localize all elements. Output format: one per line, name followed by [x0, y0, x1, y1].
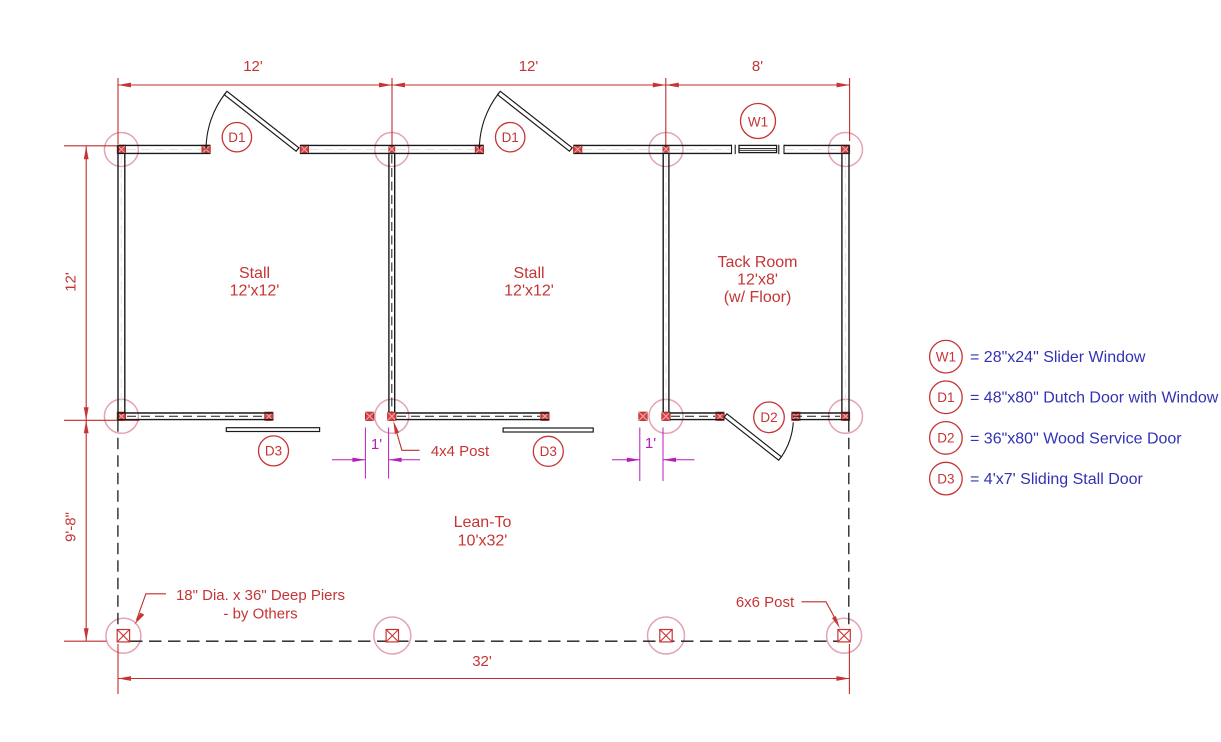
svg-text:D3: D3: [540, 444, 557, 459]
svg-text:D1: D1: [937, 390, 954, 405]
svg-text:(w/ Floor): (w/ Floor): [724, 289, 792, 306]
svg-text:D1: D1: [502, 130, 519, 145]
svg-text:8': 8': [752, 58, 763, 75]
svg-text:12': 12': [243, 58, 263, 75]
svg-text:12': 12': [519, 58, 539, 75]
svg-text:12'x8': 12'x8': [737, 272, 778, 289]
svg-text:D2: D2: [937, 431, 954, 446]
svg-text:D3: D3: [937, 471, 954, 486]
svg-text:Stall: Stall: [513, 265, 544, 282]
svg-text:Lean-To: Lean-To: [454, 514, 512, 531]
svg-text:18" Dia. x 36" Deep Piers: 18" Dia. x 36" Deep Piers: [176, 587, 345, 604]
svg-text:D1: D1: [228, 130, 245, 145]
svg-text:W1: W1: [936, 350, 956, 365]
svg-text:10'x32': 10'x32': [458, 533, 508, 550]
svg-text:6x6 Post: 6x6 Post: [736, 594, 795, 611]
svg-text:= 4'x7' Sliding Stall Door: = 4'x7' Sliding Stall Door: [970, 471, 1144, 488]
svg-text:32': 32': [472, 653, 492, 670]
svg-text:4x4 Post: 4x4 Post: [431, 443, 490, 460]
svg-text:12': 12': [63, 272, 80, 292]
svg-text:= 48"x80" Dutch Door with Wind: = 48"x80" Dutch Door with Window: [970, 390, 1219, 407]
svg-text:D3: D3: [265, 444, 282, 459]
svg-text:= 28"x24" Slider Window: = 28"x24" Slider Window: [970, 349, 1146, 366]
svg-text:12'x12': 12'x12': [230, 283, 280, 300]
svg-text:- by Others: - by Others: [223, 606, 297, 623]
svg-text:Stall: Stall: [239, 265, 270, 282]
svg-text:= 36"x80" Wood Service Door: = 36"x80" Wood Service Door: [970, 430, 1182, 447]
svg-text:W1: W1: [748, 114, 768, 129]
svg-text:Tack Room: Tack Room: [717, 254, 797, 271]
svg-text:1': 1': [371, 436, 382, 453]
svg-text:1': 1': [645, 435, 656, 452]
svg-text:12'x12': 12'x12': [504, 283, 554, 300]
svg-text:D2: D2: [760, 410, 777, 425]
svg-text:9'-8": 9'-8": [63, 512, 80, 542]
